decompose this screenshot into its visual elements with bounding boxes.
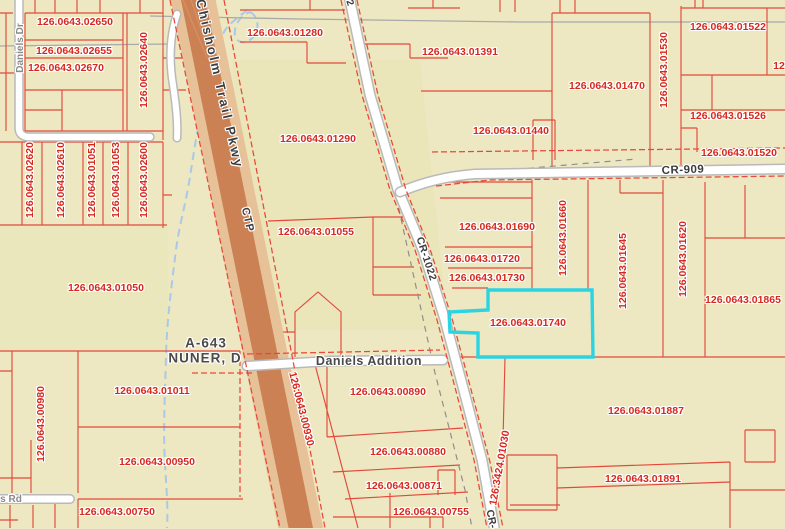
highlighted-parcel-outline [449, 290, 593, 357]
road-daniels-dr [19, 0, 177, 138]
parcel-map-canvas[interactable] [0, 0, 785, 528]
road-daniels-addition [247, 360, 443, 366]
survey-lines [0, 16, 785, 46]
highlighted-parcel[interactable] [449, 290, 593, 357]
map-page: { "map": { "highlighted_parcel": "126.06… [0, 0, 785, 528]
road-cr-909 [400, 169, 785, 192]
